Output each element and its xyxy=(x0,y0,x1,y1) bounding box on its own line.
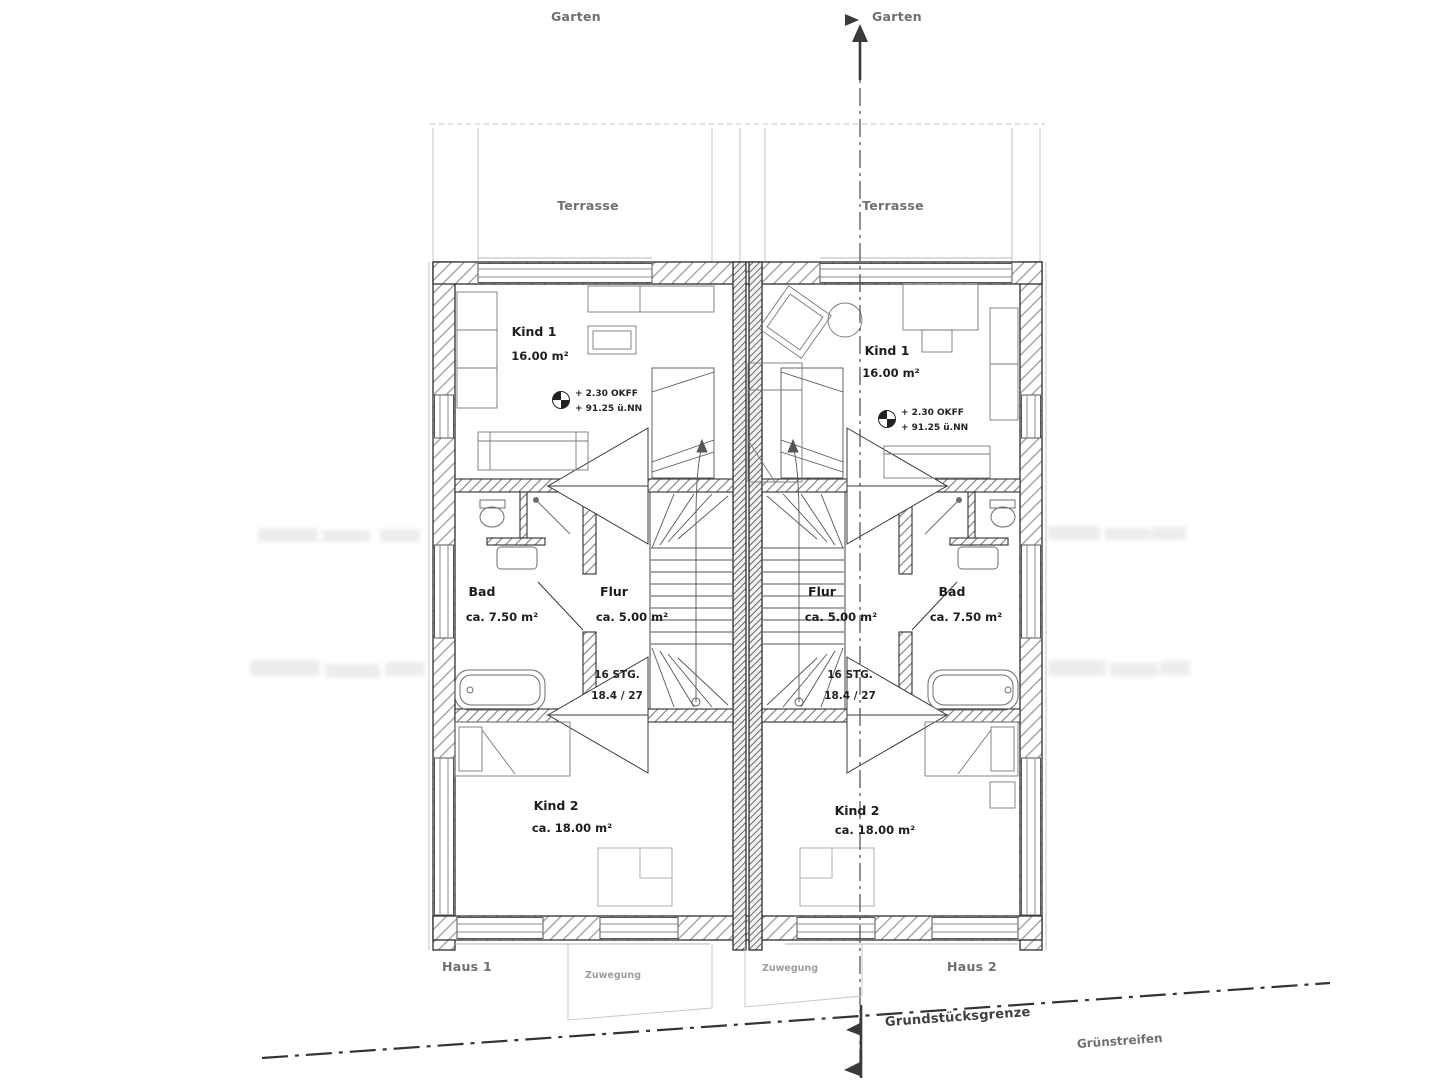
terrasse-left-label: Terrasse xyxy=(557,198,619,213)
door-swings xyxy=(538,428,957,773)
stairs-haus1 xyxy=(651,368,732,707)
exterior-walls xyxy=(433,262,1042,950)
floor-plan-page: Garten Garten Terrasse Terrasse Kind 1 1… xyxy=(0,0,1440,1080)
haus1-stairs-line2: 18.4 / 27 xyxy=(591,690,643,702)
haus2-kind1-name: Kind 1 xyxy=(865,343,910,358)
haus1-kind1-area: 16.00 m² xyxy=(511,349,568,363)
garten-right-label: Garten xyxy=(872,9,922,24)
haus1-bad-name: Bad xyxy=(469,584,496,599)
haus1-name-label: Haus 1 xyxy=(442,959,492,974)
access-outlines xyxy=(568,944,862,1020)
floor-plan-drawing: Garten Garten Terrasse Terrasse Kind 1 1… xyxy=(0,0,1440,1080)
level-marker-haus2 xyxy=(879,411,896,428)
haus2-flur-area: ca. 5.00 m² xyxy=(805,610,877,624)
zuwegung-left-label: Zuwegung xyxy=(585,970,641,981)
haus2-bad-area: ca. 7.50 m² xyxy=(930,610,1002,624)
haus1-level-line2: + 91.25 ü.NN xyxy=(575,404,642,414)
haus1-kind2-area: ca. 18.00 m² xyxy=(532,821,612,835)
haus1-flur-name: Flur xyxy=(600,584,629,599)
property-line xyxy=(262,983,1330,1058)
garten-left-label: Garten xyxy=(551,9,601,24)
grundstuecksgrenze-label: Grundstücksgrenze xyxy=(885,1005,1031,1030)
level-marker-haus1 xyxy=(553,392,570,409)
haus1-flur-area: ca. 5.00 m² xyxy=(596,610,668,624)
haus2-kind2-area: ca. 18.00 m² xyxy=(835,823,915,837)
haus2-level-line1: + 2.30 OKFF xyxy=(901,408,964,418)
haus1-kind1-name: Kind 1 xyxy=(512,324,557,339)
scan-bleed-artifact xyxy=(250,526,1190,678)
gruenstreifen-label: Grünstreifen xyxy=(1076,1031,1163,1051)
haus1-kind2-name: Kind 2 xyxy=(534,798,579,813)
terrasse-right-label: Terrasse xyxy=(862,198,924,213)
haus2-name-label: Haus 2 xyxy=(947,959,997,974)
haus2-level-line2: + 91.25 ü.NN xyxy=(901,423,968,433)
haus1-level-line1: + 2.30 OKFF xyxy=(575,389,638,399)
stairs-haus2 xyxy=(763,368,844,707)
haus2-flur-name: Flur xyxy=(808,584,837,599)
haus2-bad-name: Bad xyxy=(939,584,966,599)
haus1-bad-area: ca. 7.50 m² xyxy=(466,610,538,624)
haus2-stairs-line2: 18.4 / 27 xyxy=(824,690,876,702)
haus2-kind2-name: Kind 2 xyxy=(835,803,880,818)
zuwegung-right-label: Zuwegung xyxy=(762,963,818,974)
haus2-stairs-line1: 16 STG. xyxy=(827,669,873,681)
haus1-stairs-line1: 16 STG. xyxy=(594,669,640,681)
haus2-kind1-area: 16.00 m² xyxy=(862,366,919,380)
bath-fixtures-haus1 xyxy=(455,498,570,711)
